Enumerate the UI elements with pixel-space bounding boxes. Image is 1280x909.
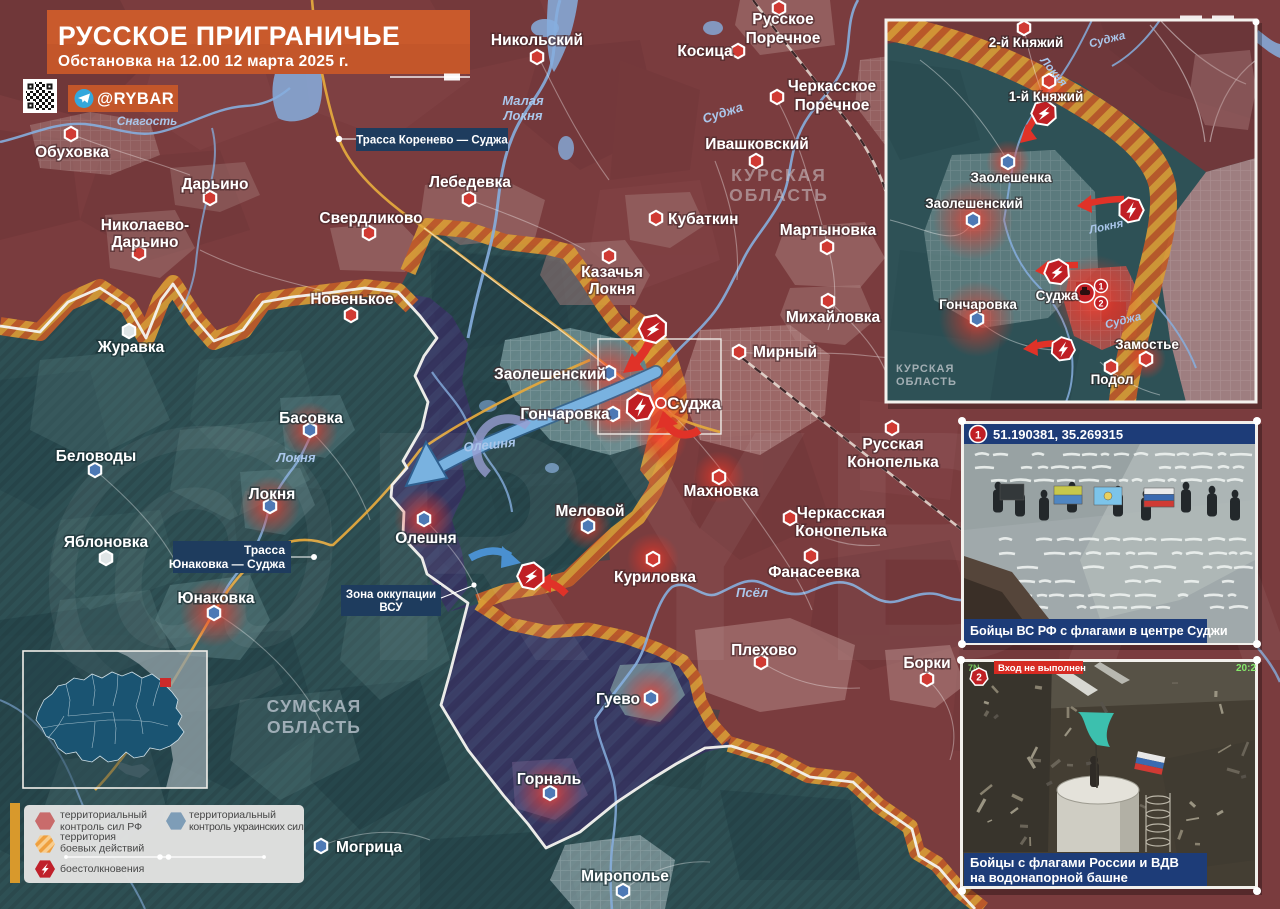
svg-text:территориальный: территориальный xyxy=(60,809,147,821)
svg-text:Заолешенский: Заолешенский xyxy=(925,196,1023,211)
svg-text:Борки: Борки xyxy=(903,655,950,672)
svg-text:Ивашковский: Ивашковский xyxy=(705,136,809,153)
svg-text:Яблоновка: Яблоновка xyxy=(64,534,149,551)
svg-text:Заолешенка: Заолешенка xyxy=(971,170,1052,185)
svg-text:Трасса: Трасса xyxy=(244,543,285,557)
svg-text:территориальный: территориальный xyxy=(189,809,276,821)
svg-text:Горналь: Горналь xyxy=(517,771,581,788)
svg-text:Суджа: Суджа xyxy=(667,394,721,413)
svg-text:Черкасская: Черкасская xyxy=(797,505,885,522)
svg-text:Михайловка: Михайловка xyxy=(786,309,881,326)
svg-text:Псёл: Псёл xyxy=(736,585,768,600)
svg-text:2: 2 xyxy=(976,673,982,684)
svg-text:КУРСКАЯ: КУРСКАЯ xyxy=(896,363,954,375)
svg-text:51.190381, 35.269315: 51.190381, 35.269315 xyxy=(993,427,1123,442)
svg-text:Могрица: Могрица xyxy=(336,839,403,856)
svg-text:Мартыновка: Мартыновка xyxy=(780,222,877,239)
svg-text:на водонапорной башне: на водонапорной башне xyxy=(970,870,1128,885)
svg-text:Снагость: Снагость xyxy=(117,114,178,128)
svg-text:Мирный: Мирный xyxy=(753,344,817,361)
svg-text:Малая: Малая xyxy=(502,93,544,108)
svg-text:Локня: Локня xyxy=(503,108,543,123)
svg-text:Зона оккупации: Зона оккупации xyxy=(346,589,436,601)
svg-text:Юнаковка — Суджа: Юнаковка — Суджа xyxy=(169,557,286,571)
svg-text:Конопелька: Конопелька xyxy=(847,454,939,471)
svg-text:Николаево-: Николаево- xyxy=(101,217,189,234)
svg-text:Локня: Локня xyxy=(589,281,636,298)
svg-text:ВСУ: ВСУ xyxy=(379,602,403,614)
svg-text:Куриловка: Куриловка xyxy=(614,569,696,586)
svg-text:КУРСКАЯ: КУРСКАЯ xyxy=(731,165,827,185)
svg-text:боевых действий: боевых действий xyxy=(60,843,144,855)
svg-text:Гончаровка: Гончаровка xyxy=(939,297,1017,312)
svg-text:Поречное: Поречное xyxy=(746,30,821,47)
svg-text:Обуховка: Обуховка xyxy=(35,144,109,161)
svg-text:1: 1 xyxy=(975,430,981,442)
svg-text:1-й Княжий: 1-й Княжий xyxy=(1009,89,1084,104)
svg-text:Журавка: Журавка xyxy=(97,339,165,356)
svg-text:контроль украинских сил: контроль украинских сил xyxy=(189,821,304,833)
svg-text:Кубаткин: Кубаткин xyxy=(668,211,739,228)
svg-text:Локня: Локня xyxy=(276,450,316,465)
svg-text:ОБЛАСТЬ: ОБЛАСТЬ xyxy=(729,185,829,205)
svg-text:боестолкновения: боестолкновения xyxy=(60,863,144,875)
svg-text:Бойцы ВС РФ с флагами в центре: Бойцы ВС РФ с флагами в центре Суджи xyxy=(970,624,1228,638)
svg-text:Заолешенский: Заолешенский xyxy=(494,366,606,383)
svg-text:Махновка: Махновка xyxy=(683,483,758,500)
svg-text:Поречное: Поречное xyxy=(795,97,870,114)
svg-text:Обстановка на 12.00 12 марта 2: Обстановка на 12.00 12 марта 2025 г. xyxy=(58,53,349,70)
svg-text:Беловоды: Беловоды xyxy=(56,448,137,465)
svg-text:Косица: Косица xyxy=(677,43,733,60)
svg-text:Казачья: Казачья xyxy=(581,264,643,281)
svg-text:Бойцы с флагами России и ВДВ: Бойцы с флагами России и ВДВ xyxy=(970,855,1179,870)
svg-text:@RYBAR: @RYBAR xyxy=(97,90,174,108)
svg-text:Суджа: Суджа xyxy=(1036,288,1079,303)
svg-text:Лебедевка: Лебедевка xyxy=(429,174,511,191)
svg-text:РУССКОЕ ПРИГРАНИЧЬЕ: РУССКОЕ ПРИГРАНИЧЬЕ xyxy=(58,21,400,51)
svg-text:Никольский: Никольский xyxy=(491,32,583,49)
svg-text:СУМСКАЯ: СУМСКАЯ xyxy=(267,696,362,716)
svg-text:территория: территория xyxy=(60,831,116,843)
svg-text:1: 1 xyxy=(1098,282,1103,292)
svg-text:ОБЛАСТЬ: ОБЛАСТЬ xyxy=(896,376,957,388)
svg-text:Подол: Подол xyxy=(1091,372,1134,387)
svg-text:20:2: 20:2 xyxy=(1236,663,1256,674)
svg-text:Дарьино: Дарьино xyxy=(111,234,178,251)
svg-text:Гуево: Гуево xyxy=(596,691,640,708)
svg-text:Замостье: Замостье xyxy=(1115,337,1179,352)
svg-text:Новенькое: Новенькое xyxy=(310,291,394,308)
svg-text:Вход не выполнен: Вход не выполнен xyxy=(998,663,1086,674)
svg-text:Гончаровка: Гончаровка xyxy=(520,406,610,423)
svg-text:ОБЛАСТЬ: ОБЛАСТЬ xyxy=(267,717,361,737)
svg-text:Русское: Русское xyxy=(752,11,814,28)
svg-text:Конопелька: Конопелька xyxy=(795,523,887,540)
svg-text:Олешня: Олешня xyxy=(395,530,456,547)
svg-text:2-й Княжий: 2-й Княжий xyxy=(989,35,1064,50)
svg-text:Мирополье: Мирополье xyxy=(581,868,669,885)
svg-text:Черкасское: Черкасское xyxy=(788,78,877,95)
svg-text:Фанасеевка: Фанасеевка xyxy=(768,564,860,581)
svg-text:Басовка: Басовка xyxy=(279,410,343,427)
svg-text:2: 2 xyxy=(1098,299,1103,309)
svg-text:Локня: Локня xyxy=(249,486,296,503)
svg-text:Плехово: Плехово xyxy=(731,642,797,659)
svg-text:Свердликово: Свердликово xyxy=(319,210,422,227)
svg-text:Русская: Русская xyxy=(862,436,923,453)
svg-text:Трасса Коренево — Суджа: Трасса Коренево — Суджа xyxy=(356,135,508,147)
svg-text:Дарьино: Дарьино xyxy=(181,176,248,193)
svg-text:Юнаковка: Юнаковка xyxy=(178,590,255,607)
svg-text:Меловой: Меловой xyxy=(556,503,625,520)
